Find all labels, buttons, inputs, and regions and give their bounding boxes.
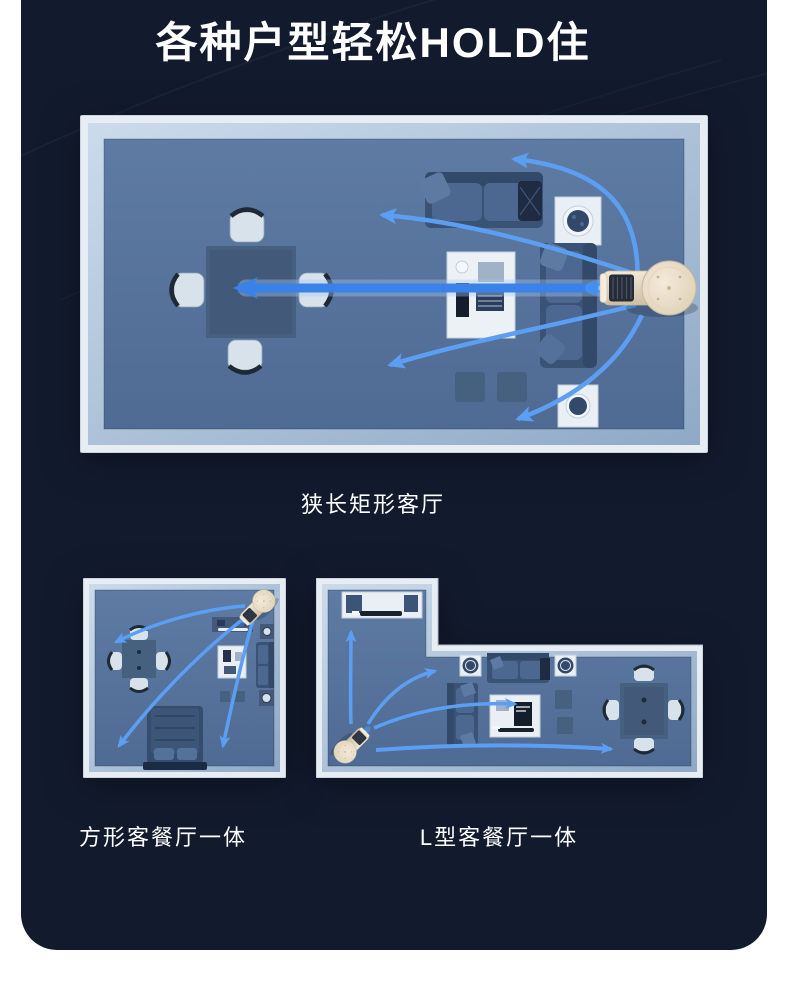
vertical-sofa <box>447 682 478 747</box>
promo-page: 各种户型轻松HOLD住 <box>0 0 790 994</box>
floorplan-large-rectangular-living-room <box>80 115 708 453</box>
plant-side-table <box>555 655 576 676</box>
floorplan-l-shaped-living-dining-room <box>316 578 703 778</box>
dining-chair <box>230 210 264 243</box>
top-sofa <box>487 653 550 683</box>
caption-lshape-room: L型客餐厅一体 <box>420 820 578 852</box>
coffee-table <box>490 695 540 737</box>
dining-chair <box>172 273 205 307</box>
dining-chair <box>228 340 262 373</box>
tv-media-unit <box>342 592 422 618</box>
plant-side-table <box>555 197 601 245</box>
caption-large-room: 狭长矩形客厅 <box>301 487 445 519</box>
caption-square-room: 方形客餐厅一体 <box>79 820 247 852</box>
right-sofa <box>256 642 274 688</box>
plant-side-table <box>460 655 481 676</box>
page-title: 各种户型轻松HOLD住 <box>156 20 591 66</box>
daybed <box>143 706 207 770</box>
floorplan-square-living-dining-room <box>83 578 286 778</box>
